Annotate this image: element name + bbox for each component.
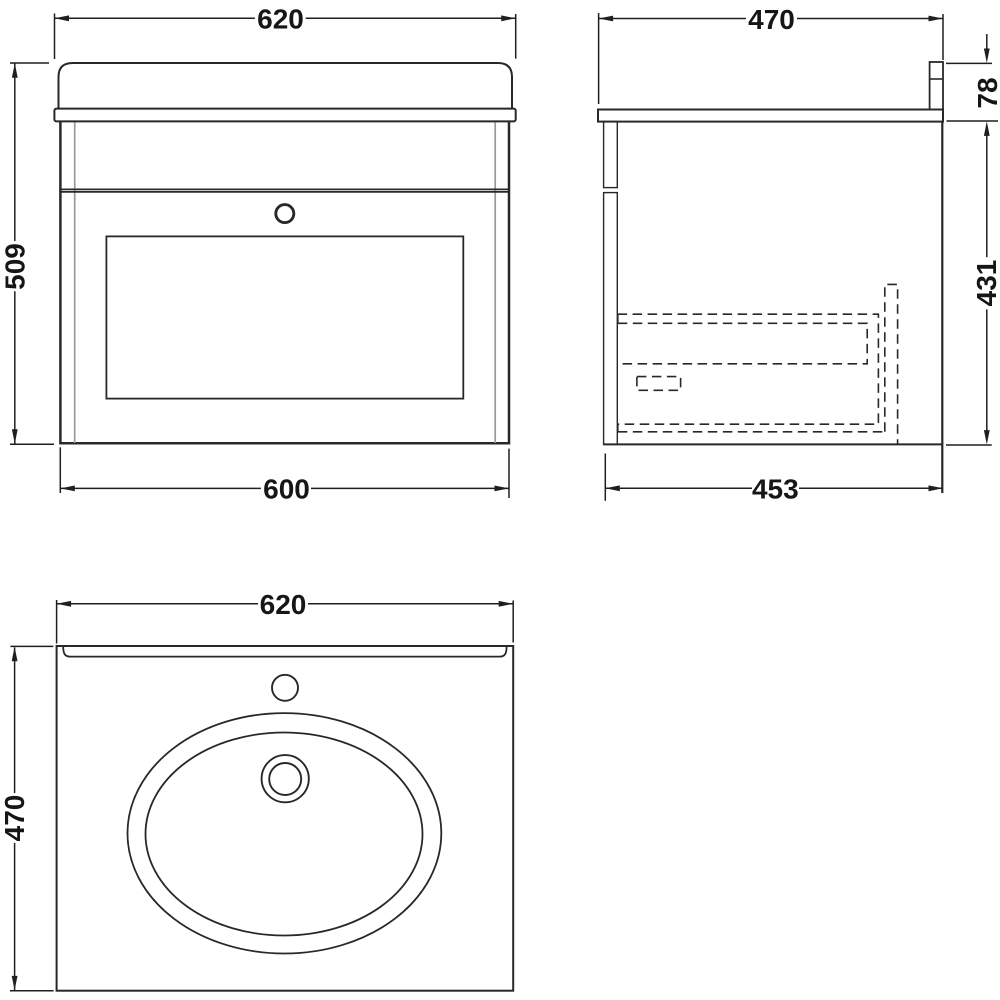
svg-text:431: 431	[971, 260, 1000, 307]
svg-text:470: 470	[0, 795, 30, 842]
svg-text:620: 620	[260, 589, 307, 620]
svg-text:600: 600	[263, 474, 310, 505]
svg-text:509: 509	[0, 243, 31, 290]
svg-text:470: 470	[748, 4, 795, 35]
svg-text:620: 620	[257, 3, 304, 34]
svg-text:453: 453	[752, 474, 799, 505]
svg-text:78: 78	[972, 77, 1000, 108]
